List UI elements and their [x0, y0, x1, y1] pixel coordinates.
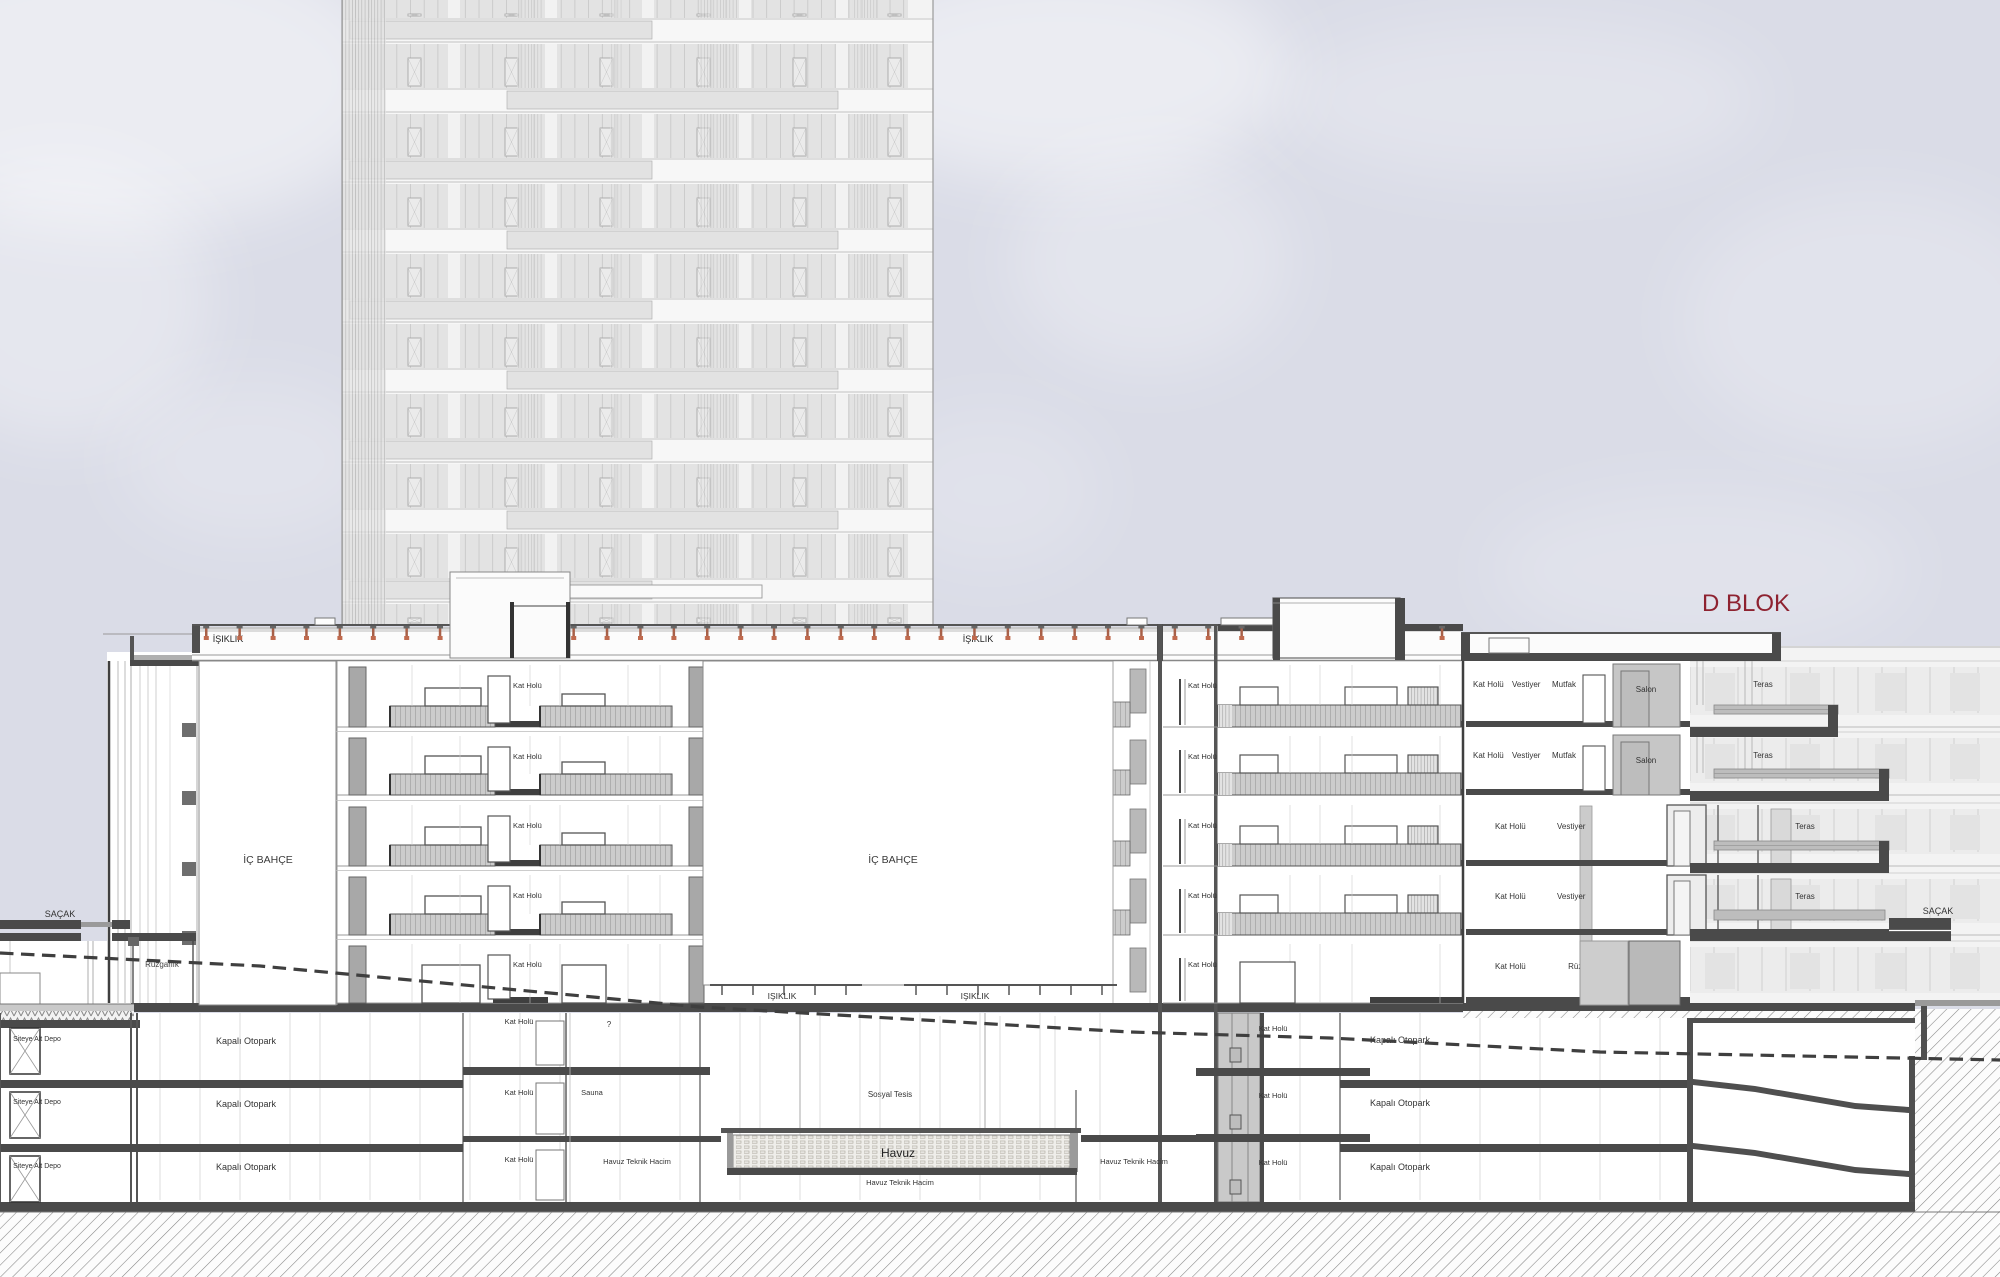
- svg-text:Kat Holü: Kat Holü: [505, 1017, 534, 1026]
- svg-text:Salon: Salon: [1636, 756, 1656, 765]
- svg-text:Sauna: Sauna: [581, 1088, 604, 1097]
- svg-text:Teras: Teras: [1753, 751, 1773, 760]
- svg-text:İÇ BAHÇE: İÇ BAHÇE: [868, 853, 918, 866]
- svg-text:IŞIKLIK: IŞIKLIK: [768, 991, 797, 1001]
- svg-text:Havuz Teknik Hacim: Havuz Teknik Hacim: [603, 1157, 671, 1166]
- svg-text:Kat Holü: Kat Holü: [1188, 681, 1217, 690]
- svg-text:Kat Holü: Kat Holü: [1188, 752, 1217, 761]
- svg-text:İÇ BAHÇE: İÇ BAHÇE: [243, 853, 293, 866]
- svg-text:Kat Holü: Kat Holü: [1495, 822, 1526, 831]
- svg-text:Kat Holü: Kat Holü: [1473, 680, 1504, 689]
- svg-text:Teras: Teras: [1795, 822, 1815, 831]
- svg-text:Teras: Teras: [1753, 680, 1773, 689]
- svg-text:Kapalı Otopark: Kapalı Otopark: [1370, 1162, 1431, 1172]
- svg-text:Kat Holü: Kat Holü: [1495, 892, 1526, 901]
- svg-text:Kat Holü: Kat Holü: [513, 821, 542, 830]
- svg-text:Vestiyer: Vestiyer: [1512, 680, 1541, 689]
- svg-text:SAÇAK: SAÇAK: [45, 909, 76, 919]
- svg-text:Kat Holü: Kat Holü: [513, 681, 542, 690]
- svg-text:Siteye Alt Depo: Siteye Alt Depo: [13, 1163, 61, 1170]
- svg-text:Kapalı Otopark: Kapalı Otopark: [216, 1099, 277, 1109]
- svg-text:Kat Holü: Kat Holü: [1259, 1158, 1288, 1167]
- svg-text:Vestiyer: Vestiyer: [1512, 751, 1541, 760]
- svg-text:SAÇAK: SAÇAK: [1923, 906, 1954, 916]
- svg-text:Havuz: Havuz: [881, 1146, 915, 1160]
- svg-text:Siteye Alt Depo: Siteye Alt Depo: [13, 1036, 61, 1043]
- svg-text:Kapalı Otopark: Kapalı Otopark: [216, 1162, 277, 1172]
- svg-text:Kat Holü: Kat Holü: [1259, 1091, 1288, 1100]
- svg-text:IŞIKLIK: IŞIKLIK: [961, 991, 990, 1001]
- svg-text:Kapalı Otopark: Kapalı Otopark: [1370, 1098, 1431, 1108]
- svg-text:Kapalı Otopark: Kapalı Otopark: [1370, 1035, 1431, 1045]
- svg-text:Kapalı Otopark: Kapalı Otopark: [216, 1036, 277, 1046]
- svg-text:?: ?: [607, 1020, 612, 1029]
- svg-text:Siteye Alt Depo: Siteye Alt Depo: [13, 1099, 61, 1106]
- svg-text:Kat Holü: Kat Holü: [513, 752, 542, 761]
- svg-text:Kat Holü: Kat Holü: [1259, 1024, 1288, 1033]
- svg-text:Kat Holü: Kat Holü: [513, 960, 542, 969]
- svg-text:İŞIKLIK: İŞIKLIK: [963, 634, 994, 644]
- svg-text:Sosyal Tesis: Sosyal Tesis: [868, 1090, 912, 1099]
- svg-text:Vestiyer: Vestiyer: [1557, 892, 1586, 901]
- svg-text:Havuz Teknik Hacim: Havuz Teknik Hacim: [866, 1178, 934, 1187]
- svg-text:Kat Holü: Kat Holü: [1495, 962, 1526, 971]
- svg-text:Mutfak: Mutfak: [1552, 751, 1577, 760]
- svg-text:Havuz Teknik Hacim: Havuz Teknik Hacim: [1100, 1157, 1168, 1166]
- svg-text:Kat Holü: Kat Holü: [1188, 821, 1217, 830]
- svg-text:D BLOK: D BLOK: [1702, 590, 1790, 617]
- svg-text:Kat Holü: Kat Holü: [1473, 751, 1504, 760]
- svg-text:Mutfak: Mutfak: [1552, 680, 1577, 689]
- svg-text:Teras: Teras: [1795, 892, 1815, 901]
- svg-text:Kat Holü: Kat Holü: [505, 1088, 534, 1097]
- svg-text:Salon: Salon: [1636, 685, 1656, 694]
- svg-text:Kat Holü: Kat Holü: [1188, 891, 1217, 900]
- svg-text:Vestiyer: Vestiyer: [1557, 822, 1586, 831]
- svg-text:Kat Holü: Kat Holü: [505, 1155, 534, 1164]
- svg-text:Kat Holü: Kat Holü: [513, 891, 542, 900]
- svg-text:Kat Holü: Kat Holü: [1188, 960, 1217, 969]
